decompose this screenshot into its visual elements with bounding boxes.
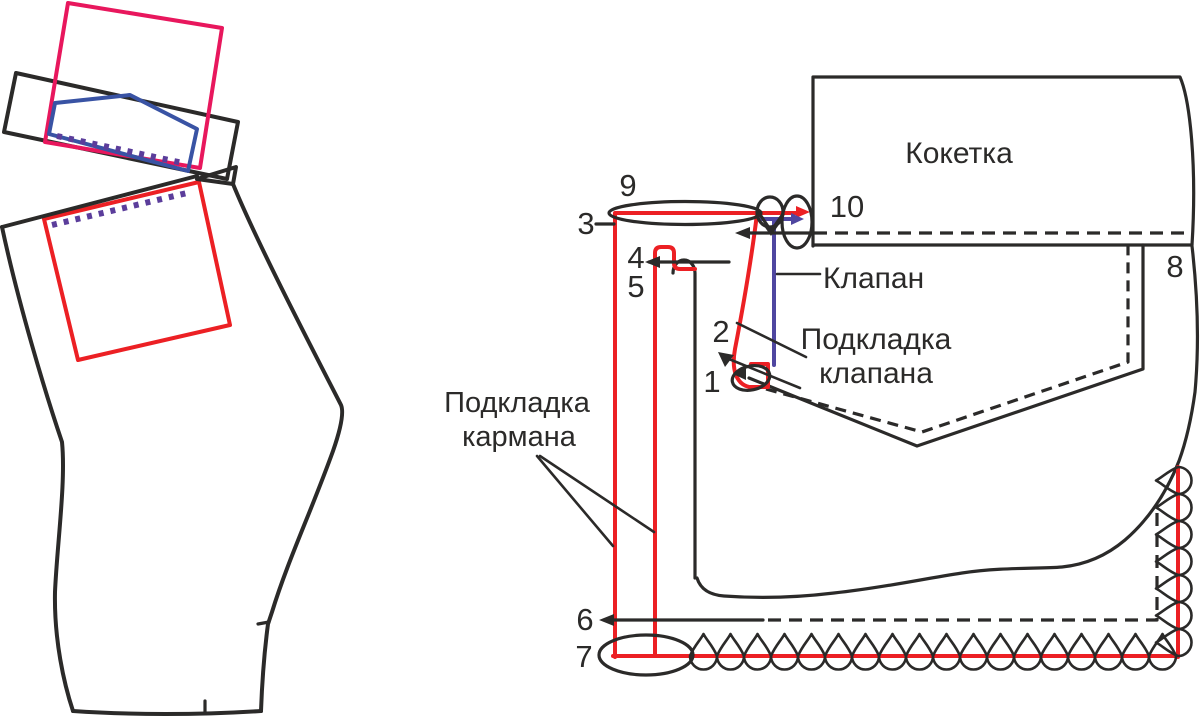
pocket-lining-label-line1: Подкладка	[444, 387, 591, 419]
step-marker-2: 2	[712, 314, 729, 349]
inseam-notch	[258, 622, 269, 624]
flap-lining-edge-curve	[734, 214, 768, 387]
yoke-label: Кокетка	[905, 137, 1013, 170]
diagram-canvas: Кокетка	[0, 0, 1200, 718]
step-marker-3: 3	[577, 206, 594, 241]
step-marker-1: 1	[703, 364, 720, 399]
step-marker-7: 7	[575, 639, 592, 674]
arrowhead-step4-5	[645, 256, 660, 268]
assembly-diagram: Кокетка	[444, 77, 1197, 675]
waistband-piece-outline	[4, 73, 238, 179]
pocket-bottom-stitch-dashed	[768, 513, 1157, 620]
flap-label: Клапан	[823, 262, 924, 295]
flap-lining-label-line1: Подкладка	[801, 323, 952, 356]
pocket-lining-leader-1	[537, 456, 613, 546]
pocket-lining-leader-2	[540, 456, 654, 532]
flap-lining-label-line2: клапана	[819, 357, 933, 390]
overlock-zigzag-bottom	[690, 634, 1176, 670]
pocket-lining-fold-edge	[655, 247, 695, 656]
pattern-layout-figure	[2, 3, 342, 714]
flap-lining-leader-upper	[737, 323, 806, 357]
pocket-lining-label-line2: кармана	[462, 421, 577, 453]
sewing-pattern-diagram: Кокетка	[0, 0, 1200, 718]
step-marker-10: 10	[830, 189, 864, 224]
step-marker-8: 8	[1166, 249, 1183, 284]
arrowhead-step6	[599, 614, 614, 626]
arrowhead-step10	[735, 227, 750, 239]
pocket-bag-fold-arc	[673, 260, 695, 578]
step-marker-9: 9	[619, 168, 636, 203]
step-marker-6: 6	[576, 602, 593, 637]
step-marker-5: 5	[627, 269, 644, 304]
